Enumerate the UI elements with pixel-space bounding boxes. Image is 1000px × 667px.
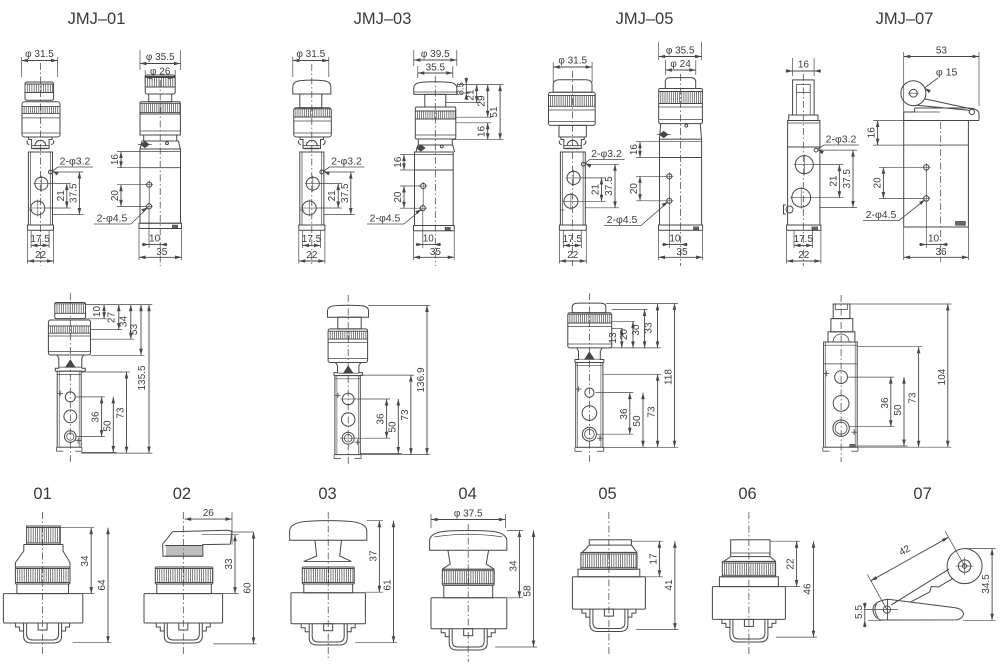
- svg-text:φ 24: φ 24: [670, 59, 691, 70]
- svg-text:JMJ–07: JMJ–07: [876, 10, 934, 28]
- svg-text:φ 35.5: φ 35.5: [666, 46, 695, 57]
- svg-text:04: 04: [458, 485, 476, 503]
- svg-text:02: 02: [173, 485, 191, 503]
- svg-text:36: 36: [91, 411, 102, 423]
- svg-text:35: 35: [430, 247, 442, 258]
- svg-text:16: 16: [110, 154, 121, 166]
- svg-text:JMJ–01: JMJ–01: [68, 10, 126, 28]
- svg-text:73: 73: [908, 392, 919, 404]
- svg-text:33: 33: [224, 558, 235, 570]
- svg-text:17.5: 17.5: [794, 234, 814, 245]
- svg-text:36: 36: [376, 413, 387, 425]
- svg-text:34.5: 34.5: [981, 574, 992, 594]
- svg-text:22: 22: [798, 250, 810, 261]
- svg-text:64: 64: [97, 579, 108, 591]
- svg-text:16: 16: [629, 144, 640, 156]
- svg-text:10: 10: [92, 306, 103, 318]
- svg-text:13: 13: [608, 332, 619, 344]
- svg-text:21: 21: [591, 184, 602, 196]
- svg-text:16: 16: [867, 127, 878, 139]
- svg-text:10: 10: [928, 234, 940, 245]
- svg-text:21: 21: [828, 175, 839, 187]
- svg-text:17.5: 17.5: [563, 234, 583, 245]
- svg-text:29: 29: [477, 95, 488, 107]
- svg-text:35.5: 35.5: [426, 63, 446, 74]
- svg-text:φ 31.5: φ 31.5: [296, 49, 325, 60]
- svg-text:01: 01: [33, 485, 51, 503]
- svg-text:46: 46: [803, 583, 814, 595]
- svg-text:118: 118: [664, 369, 675, 385]
- svg-text:35: 35: [676, 247, 688, 258]
- svg-text:37.5: 37.5: [340, 183, 351, 203]
- svg-text:30: 30: [631, 324, 642, 336]
- svg-text:22: 22: [567, 250, 579, 261]
- svg-text:φ 31.5: φ 31.5: [558, 56, 587, 67]
- svg-text:21: 21: [56, 190, 67, 202]
- svg-text:20: 20: [110, 190, 121, 202]
- svg-text:φ 37.5: φ 37.5: [454, 509, 483, 520]
- svg-text:10: 10: [423, 234, 435, 245]
- svg-text:JMJ–03: JMJ–03: [354, 10, 412, 28]
- svg-text:φ 39.5: φ 39.5: [421, 49, 450, 60]
- svg-text:20: 20: [619, 329, 630, 341]
- svg-text:03: 03: [318, 485, 336, 503]
- svg-text:16: 16: [798, 60, 810, 71]
- svg-text:22: 22: [786, 558, 797, 570]
- svg-text:2-φ4.5: 2-φ4.5: [97, 213, 128, 225]
- svg-text:34: 34: [508, 560, 519, 572]
- svg-text:36: 36: [619, 408, 630, 420]
- svg-text:20: 20: [629, 183, 640, 195]
- svg-text:136.9: 136.9: [416, 367, 427, 392]
- svg-text:33: 33: [644, 322, 655, 334]
- svg-text:2-φ3.2: 2-φ3.2: [591, 148, 622, 160]
- svg-text:21: 21: [327, 190, 338, 202]
- svg-text:20: 20: [393, 191, 404, 203]
- svg-text:φ 26: φ 26: [150, 67, 171, 78]
- svg-text:104: 104: [937, 368, 948, 385]
- svg-text:73: 73: [400, 409, 411, 421]
- svg-text:20: 20: [872, 177, 883, 189]
- svg-text:36: 36: [880, 397, 891, 409]
- svg-text:50: 50: [387, 421, 398, 433]
- svg-text:36: 36: [935, 247, 947, 258]
- svg-text:37.5: 37.5: [604, 176, 615, 196]
- svg-text:21: 21: [466, 89, 477, 101]
- svg-text:35: 35: [156, 247, 168, 258]
- svg-text:2-φ4.5: 2-φ4.5: [370, 213, 401, 225]
- svg-text:58: 58: [523, 585, 534, 597]
- svg-text:05: 05: [598, 485, 616, 503]
- svg-text:φ 31.5: φ 31.5: [25, 49, 54, 60]
- svg-text:10: 10: [669, 234, 681, 245]
- svg-text:17: 17: [648, 553, 659, 565]
- svg-text:51: 51: [489, 106, 500, 118]
- svg-text:16: 16: [393, 156, 404, 168]
- svg-text:06: 06: [738, 485, 756, 503]
- svg-text:17.5: 17.5: [302, 234, 322, 245]
- svg-text:37: 37: [368, 550, 379, 562]
- svg-text:53: 53: [936, 46, 948, 57]
- svg-text:41: 41: [664, 579, 675, 591]
- svg-text:φ 35.5: φ 35.5: [146, 52, 175, 63]
- svg-text:φ 15: φ 15: [936, 67, 958, 79]
- svg-text:61: 61: [383, 579, 394, 591]
- svg-text:50: 50: [893, 404, 904, 416]
- svg-text:2-φ3.2: 2-φ3.2: [331, 156, 362, 168]
- svg-text:135.5: 135.5: [137, 365, 148, 390]
- svg-text:37.5: 37.5: [68, 183, 79, 203]
- svg-text:50: 50: [632, 415, 643, 427]
- svg-text:5.5: 5.5: [854, 605, 865, 619]
- svg-text:22: 22: [306, 250, 318, 261]
- svg-text:2-φ3.2: 2-φ3.2: [60, 156, 91, 168]
- svg-text:2-φ4.5: 2-φ4.5: [607, 214, 638, 226]
- svg-text:16: 16: [477, 126, 488, 138]
- svg-text:8.5: 8.5: [455, 82, 466, 95]
- svg-text:73: 73: [647, 406, 658, 418]
- svg-text:34: 34: [80, 555, 91, 567]
- svg-text:22: 22: [35, 250, 47, 261]
- svg-text:37.5: 37.5: [842, 169, 853, 189]
- svg-text:10: 10: [149, 234, 161, 245]
- svg-text:26: 26: [203, 508, 215, 519]
- svg-text:17.5: 17.5: [30, 234, 50, 245]
- svg-text:2-φ3.2: 2-φ3.2: [826, 134, 857, 146]
- svg-text:JMJ–05: JMJ–05: [616, 10, 674, 28]
- svg-text:07: 07: [913, 485, 931, 503]
- svg-text:53: 53: [129, 324, 140, 336]
- svg-text:73: 73: [116, 407, 127, 419]
- svg-text:2-φ4.5: 2-φ4.5: [866, 209, 897, 221]
- svg-text:27: 27: [107, 312, 118, 324]
- svg-text:60: 60: [243, 582, 254, 594]
- svg-text:50: 50: [102, 420, 113, 432]
